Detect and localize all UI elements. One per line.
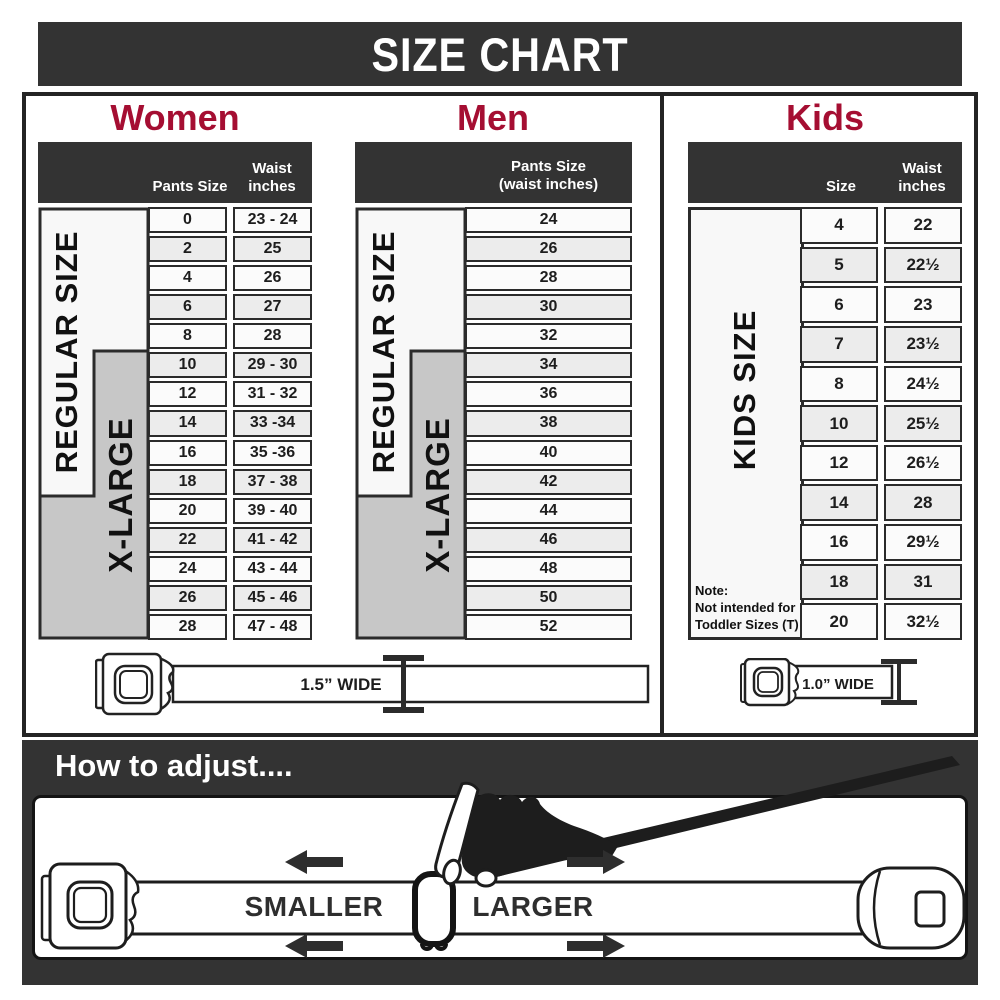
table-cell: 12	[800, 445, 878, 482]
men-size-table: 242628303234363840424446485052	[465, 207, 632, 640]
seatbelt-buckle-icon	[42, 864, 138, 948]
table-cell: 40	[465, 440, 632, 466]
table-row: 1226½	[800, 445, 962, 482]
table-row: 2032½	[800, 603, 962, 640]
kids-heading: Kids	[685, 98, 965, 138]
table-cell: 2	[148, 236, 227, 262]
table-cell: 28	[148, 614, 227, 640]
table-row: 023 - 24	[148, 207, 312, 233]
table-cell: 32	[465, 323, 632, 349]
how-to-adjust-panel: How to adjust....	[22, 740, 978, 985]
table-cell: 35 -36	[233, 440, 312, 466]
table-cell: 26½	[884, 445, 962, 482]
women-heading: Women	[35, 98, 315, 138]
table-cell: 25½	[884, 405, 962, 442]
table-row: 42	[465, 469, 632, 495]
table-row: 46	[465, 527, 632, 553]
women-pants-size-header: Pants Size	[148, 178, 232, 197]
table-cell: 45 - 46	[233, 585, 312, 611]
section-divider	[660, 96, 664, 733]
table-row: 48	[465, 556, 632, 582]
kids-note: Note: Not intended for Toddler Sizes (T)	[695, 583, 799, 634]
kids-waist-header: Waist inches	[882, 160, 962, 198]
women-size-table: 023 - 242254266278281029 - 301231 - 3214…	[148, 207, 312, 640]
table-cell: 52	[465, 614, 632, 640]
kids-belt-width-label: 1.0” WIDE	[778, 674, 898, 696]
table-row: 2443 - 44	[148, 556, 312, 582]
arrow-left-icon	[285, 850, 343, 874]
belt-tip	[858, 868, 964, 948]
table-row: 422	[800, 207, 962, 244]
table-cell: 38	[465, 410, 632, 436]
table-cell: 29½	[884, 524, 962, 561]
table-cell: 47 - 48	[233, 614, 312, 640]
table-cell: 36	[465, 381, 632, 407]
men-heading: Men	[353, 98, 633, 138]
table-row: 723½	[800, 326, 962, 363]
table-cell: 24½	[884, 366, 962, 403]
table-row: 522½	[800, 247, 962, 284]
table-cell: 26	[148, 585, 227, 611]
table-row: 1025½	[800, 405, 962, 442]
table-row: 40	[465, 440, 632, 466]
table-row: 1837 - 38	[148, 469, 312, 495]
table-row: 38	[465, 410, 632, 436]
table-row: 52	[465, 614, 632, 640]
table-row: 824½	[800, 366, 962, 403]
table-row: 32	[465, 323, 632, 349]
table-cell: 28	[465, 265, 632, 291]
table-cell: 16	[148, 440, 227, 466]
table-cell: 4	[800, 207, 878, 244]
belt-strap	[173, 666, 648, 702]
table-cell: 7	[800, 326, 878, 363]
adjust-diagram	[22, 740, 978, 985]
table-row: 1231 - 32	[148, 381, 312, 407]
table-row: 2645 - 46	[148, 585, 312, 611]
table-row: 50	[465, 585, 632, 611]
women-table-header: Pants Size Waist inches	[38, 142, 312, 203]
table-cell: 34	[465, 352, 632, 378]
table-cell: 10	[148, 352, 227, 378]
title-bar: SIZE CHART	[38, 22, 962, 86]
table-cell: 28	[233, 323, 312, 349]
table-cell: 27	[233, 294, 312, 320]
women-waist-header: Waist inches	[232, 160, 312, 198]
table-cell: 14	[148, 410, 227, 436]
table-row: 2039 - 40	[148, 498, 312, 524]
table-cell: 6	[800, 286, 878, 323]
kids-size-header: Size	[800, 178, 882, 197]
hand-illustration	[436, 756, 960, 886]
table-cell: 25	[233, 236, 312, 262]
table-row: 36	[465, 381, 632, 407]
table-cell: 12	[148, 381, 227, 407]
table-cell: 43 - 44	[233, 556, 312, 582]
table-cell: 10	[800, 405, 878, 442]
smaller-label: SMALLER	[214, 892, 414, 922]
table-cell: 42	[465, 469, 632, 495]
table-cell: 39 - 40	[233, 498, 312, 524]
table-cell: 14	[800, 484, 878, 521]
table-row: 26	[465, 236, 632, 262]
table-row: 28	[465, 265, 632, 291]
table-cell: 23	[884, 286, 962, 323]
seatbelt-buckle-icon	[96, 654, 173, 714]
table-row: 1831	[800, 564, 962, 601]
size-tables-panel: Women Pants Size Waist inches REGULAR SI…	[22, 92, 978, 737]
table-cell: 4	[148, 265, 227, 291]
men-regular-size-label: REGULAR SIZE	[364, 207, 404, 497]
table-cell: 41 - 42	[233, 527, 312, 553]
table-row: 1635 -36	[148, 440, 312, 466]
page-title: SIZE CHART	[372, 27, 629, 82]
table-cell: 8	[148, 323, 227, 349]
men-xlarge-label: X-LARGE	[418, 350, 458, 640]
arrow-left-icon	[285, 934, 343, 958]
table-cell: 20	[148, 498, 227, 524]
table-cell: 31 - 32	[233, 381, 312, 407]
table-cell: 24	[148, 556, 227, 582]
table-cell: 26	[233, 265, 312, 291]
table-cell: 32½	[884, 603, 962, 640]
table-cell: 26	[465, 236, 632, 262]
size-chart-infographic: SIZE CHART Women Pants Size Waist inches…	[0, 0, 1000, 1000]
table-cell: 22	[148, 527, 227, 553]
women-size-bracket: REGULAR SIZE X-LARGE	[38, 207, 150, 640]
table-cell: 6	[148, 294, 227, 320]
table-cell: 20	[800, 603, 878, 640]
kids-size-bracket: KIDS SIZE Note: Not intended for Toddler…	[688, 207, 804, 640]
table-row: 44	[465, 498, 632, 524]
table-cell: 44	[465, 498, 632, 524]
table-cell: 0	[148, 207, 227, 233]
table-cell: 50	[465, 585, 632, 611]
arrow-right-icon	[567, 934, 625, 958]
table-cell: 8	[800, 366, 878, 403]
table-cell: 24	[465, 207, 632, 233]
women-regular-size-label: REGULAR SIZE	[47, 207, 87, 497]
table-cell: 46	[465, 527, 632, 553]
men-pants-size-header: Pants Size (waist inches)	[465, 158, 632, 196]
table-row: 1433 -34	[148, 410, 312, 436]
kids-table-header: Size Waist inches	[688, 142, 962, 203]
table-cell: 18	[148, 469, 227, 495]
table-row: 2241 - 42	[148, 527, 312, 553]
kids-size-label: KIDS SIZE	[725, 240, 765, 540]
table-cell: 30	[465, 294, 632, 320]
table-cell: 23 - 24	[233, 207, 312, 233]
kids-size-table: 422522½623723½824½1025½1226½14281629½183…	[800, 207, 962, 640]
table-cell: 37 - 38	[233, 469, 312, 495]
table-row: 1029 - 30	[148, 352, 312, 378]
table-cell: 48	[465, 556, 632, 582]
table-cell: 5	[800, 247, 878, 284]
adult-belt-width-label: 1.5” WIDE	[281, 674, 401, 696]
larger-label: LARGER	[433, 892, 633, 922]
table-cell: 22½	[884, 247, 962, 284]
table-cell: 31	[884, 564, 962, 601]
table-row: 2847 - 48	[148, 614, 312, 640]
men-table-header: Pants Size (waist inches)	[355, 142, 632, 203]
men-size-bracket: REGULAR SIZE X-LARGE	[355, 207, 467, 640]
table-cell: 22	[884, 207, 962, 244]
table-row: 1629½	[800, 524, 962, 561]
table-row: 24	[465, 207, 632, 233]
table-cell: 33 -34	[233, 410, 312, 436]
table-row: 627	[148, 294, 312, 320]
table-row: 225	[148, 236, 312, 262]
table-row: 623	[800, 286, 962, 323]
table-row: 34	[465, 352, 632, 378]
table-cell: 29 - 30	[233, 352, 312, 378]
table-row: 828	[148, 323, 312, 349]
table-cell: 16	[800, 524, 878, 561]
table-cell: 18	[800, 564, 878, 601]
table-row: 426	[148, 265, 312, 291]
table-row: 1428	[800, 484, 962, 521]
table-cell: 23½	[884, 326, 962, 363]
table-row: 30	[465, 294, 632, 320]
women-xlarge-label: X-LARGE	[101, 350, 141, 640]
table-cell: 28	[884, 484, 962, 521]
